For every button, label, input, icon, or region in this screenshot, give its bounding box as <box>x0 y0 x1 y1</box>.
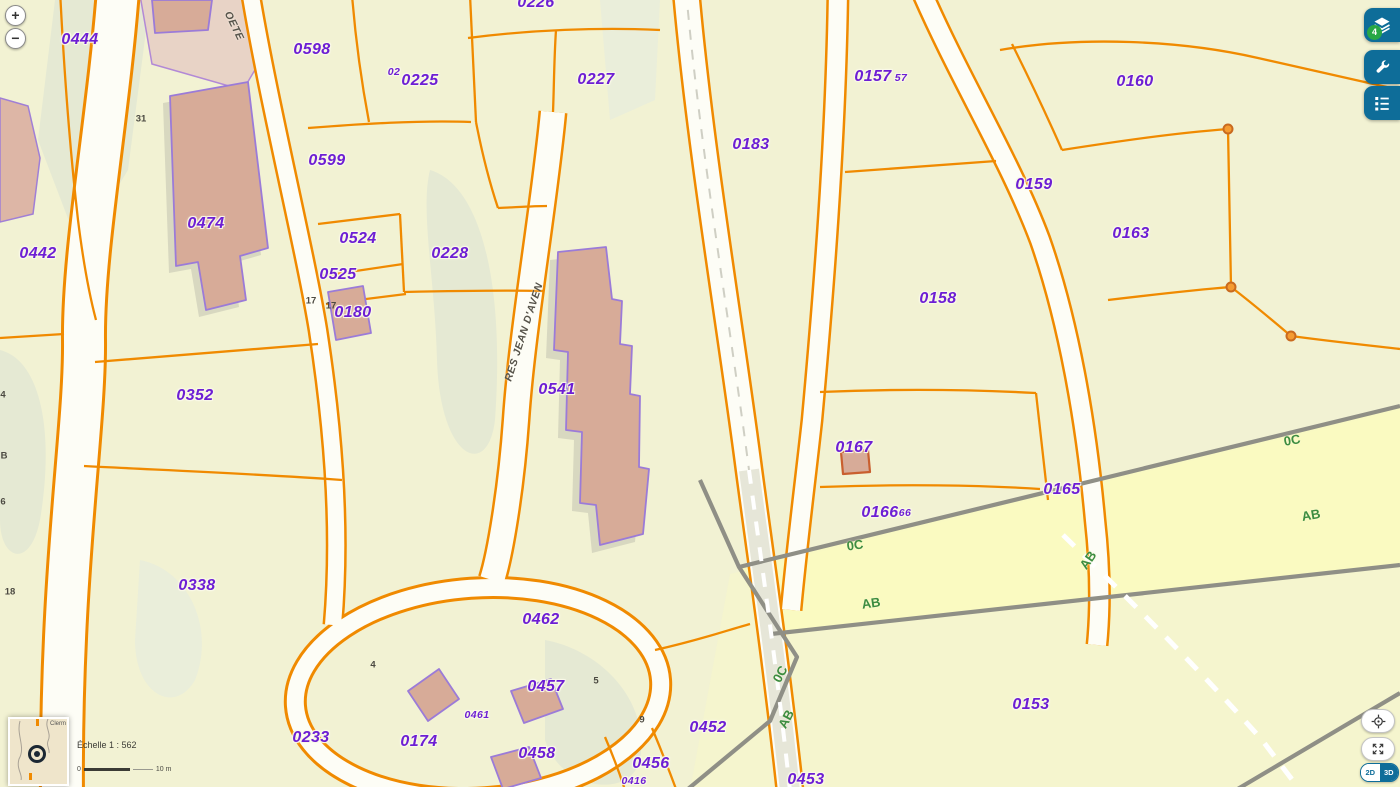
overview-place-label: Clerm <box>50 721 66 727</box>
scale-text: Échelle 1 : 562 <box>77 740 137 750</box>
locate-target-icon <box>1371 714 1386 729</box>
map-application: 0444059802250226022701570160059901830159… <box>0 0 1400 787</box>
scale-zero-label: 0 <box>77 766 81 773</box>
scale-bar-thin <box>133 769 153 770</box>
scale-bar: 0 10 m <box>77 766 171 773</box>
view-3d-button[interactable]: 3D <box>1380 764 1399 781</box>
fullscreen-arrows-icon <box>1371 742 1385 756</box>
tools-button[interactable] <box>1364 50 1400 84</box>
overview-map-drawing <box>10 719 63 780</box>
legend-list-icon <box>1373 94 1391 112</box>
scale-bar-solid <box>84 768 130 771</box>
overview-map[interactable]: Clerm <box>8 717 69 786</box>
view-dimension-toggle[interactable]: 2D 3D <box>1360 763 1399 782</box>
zoom-out-button[interactable]: − <box>5 28 26 49</box>
zoom-in-button[interactable]: + <box>5 5 26 26</box>
fullscreen-button[interactable] <box>1361 737 1395 761</box>
scale-max-label: 10 m <box>156 766 172 773</box>
map-canvas[interactable] <box>0 0 1400 787</box>
layers-button[interactable]: 4 <box>1364 8 1400 42</box>
view-2d-button[interactable]: 2D <box>1361 764 1380 781</box>
layer-count-badge: 4 <box>1367 25 1382 40</box>
legend-button[interactable] <box>1364 86 1400 120</box>
locate-button[interactable] <box>1361 709 1395 733</box>
wrench-icon <box>1374 59 1391 76</box>
